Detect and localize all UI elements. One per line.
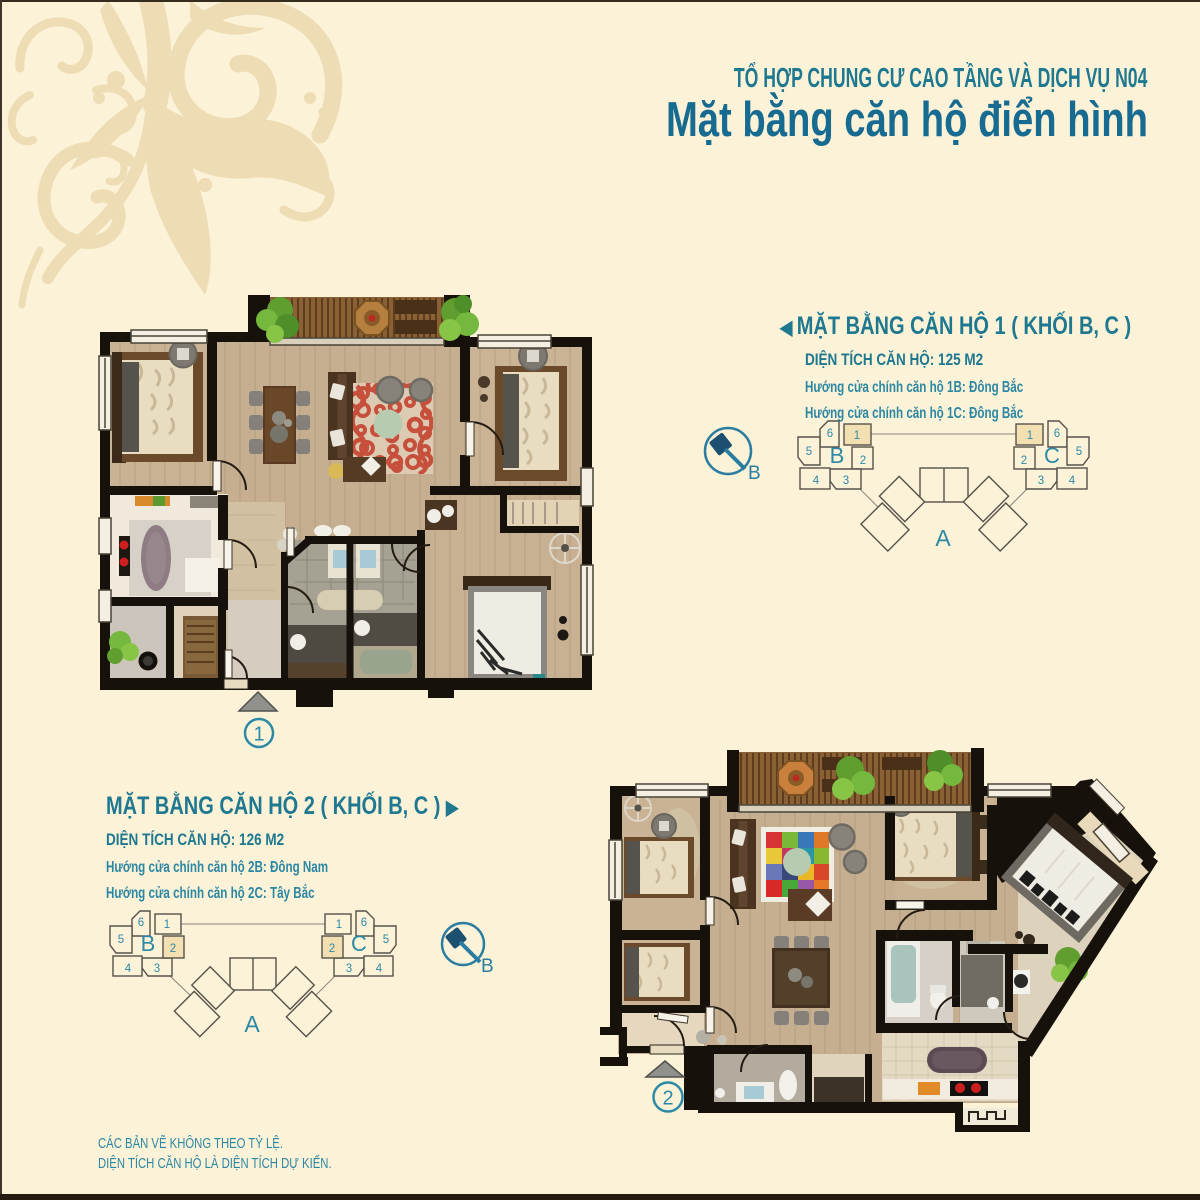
svg-text:5: 5: [383, 934, 389, 946]
svg-text:3: 3: [346, 963, 352, 975]
svg-text:1: 1: [854, 430, 860, 442]
svg-text:6: 6: [138, 917, 144, 929]
svg-text:5: 5: [806, 446, 812, 458]
svg-text:2: 2: [1021, 455, 1027, 467]
svg-text:4: 4: [376, 963, 383, 975]
svg-text:B: B: [481, 956, 494, 977]
svg-text:B: B: [830, 443, 845, 468]
svg-text:C: C: [351, 931, 367, 956]
svg-text:6: 6: [1054, 428, 1060, 440]
svg-text:3: 3: [843, 475, 849, 487]
svg-text:2: 2: [662, 1088, 673, 1110]
svg-text:6: 6: [361, 917, 367, 929]
svg-text:1: 1: [164, 919, 170, 931]
svg-text:5: 5: [118, 934, 124, 946]
svg-text:4: 4: [813, 475, 820, 487]
svg-text:2: 2: [329, 943, 335, 955]
svg-text:2: 2: [860, 455, 866, 467]
svg-text:A: A: [935, 525, 951, 551]
svg-text:B: B: [141, 931, 156, 956]
svg-text:B: B: [748, 463, 761, 484]
svg-text:A: A: [244, 1011, 260, 1037]
svg-text:6: 6: [827, 428, 833, 440]
svg-text:C: C: [1044, 443, 1060, 468]
svg-text:5: 5: [1076, 446, 1082, 458]
svg-text:2: 2: [170, 943, 176, 955]
svg-text:1: 1: [253, 724, 264, 746]
svg-text:3: 3: [154, 963, 160, 975]
svg-text:1: 1: [336, 919, 342, 931]
svg-text:1: 1: [1027, 430, 1033, 442]
svg-text:4: 4: [125, 963, 132, 975]
svg-text:3: 3: [1038, 475, 1044, 487]
svg-text:4: 4: [1069, 475, 1076, 487]
